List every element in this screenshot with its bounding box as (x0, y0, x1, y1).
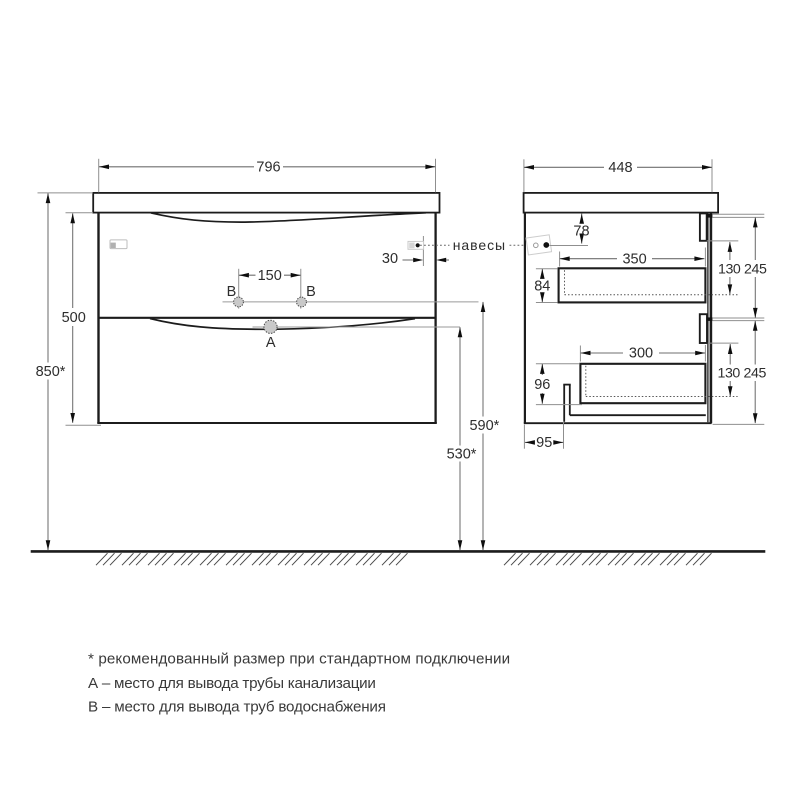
svg-text:30: 30 (382, 251, 398, 267)
svg-text:78: 78 (573, 224, 589, 240)
svg-text:B: B (227, 284, 237, 300)
svg-text:796: 796 (256, 159, 280, 175)
svg-text:B: B (306, 284, 316, 300)
svg-text:А – место для вывода трубы кан: А – место для вывода трубы канализации (88, 675, 376, 692)
svg-text:130 245: 130 245 (718, 262, 767, 278)
svg-text:130 245: 130 245 (717, 366, 766, 382)
svg-text:500: 500 (62, 310, 86, 326)
svg-text:530*: 530* (447, 447, 477, 463)
svg-text:96: 96 (534, 377, 550, 393)
svg-text:навесы: навесы (453, 237, 506, 253)
svg-text:448: 448 (608, 160, 632, 176)
svg-text:590*: 590* (469, 418, 499, 434)
svg-text:84: 84 (534, 278, 550, 294)
svg-text:850*: 850* (36, 364, 66, 380)
svg-text:A: A (266, 335, 276, 351)
svg-text:В – место для вывода труб водо: В – место для вывода труб водоснабжения (88, 698, 386, 715)
svg-text:95: 95 (536, 435, 552, 451)
svg-text:* рекомендованный размер при с: * рекомендованный размер при стандартном… (88, 651, 510, 668)
svg-text:350: 350 (622, 251, 646, 267)
svg-text:300: 300 (629, 346, 653, 362)
svg-text:150: 150 (258, 268, 282, 284)
